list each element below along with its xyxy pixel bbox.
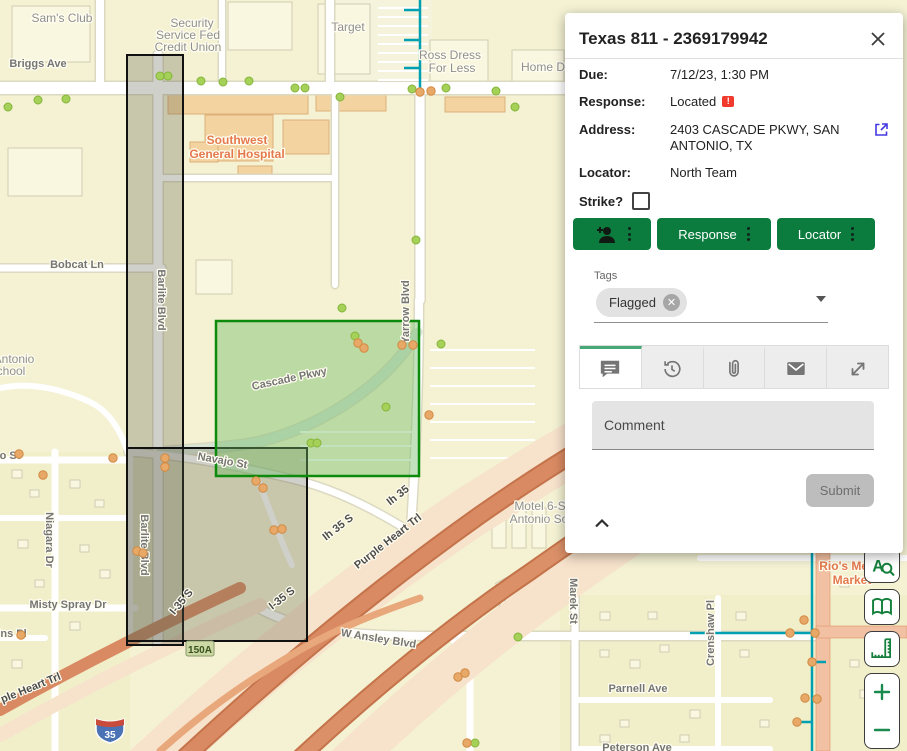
remove-tag-icon[interactable]: ✕ (663, 294, 680, 311)
app-window: 150A 35 Sam's ClubBriggs AveSecurityServ… (0, 0, 907, 751)
measure-button[interactable] (864, 631, 900, 667)
person-add-icon (594, 225, 618, 243)
orange-point[interactable] (811, 629, 819, 637)
map-label: Parnell Ave (608, 683, 667, 695)
orange-point[interactable] (409, 341, 417, 349)
due-value: 7/12/23, 1:30 PM (670, 67, 769, 83)
green-point[interactable] (219, 78, 227, 86)
locator-button[interactable]: Locator (777, 218, 875, 250)
orange-point[interactable] (398, 341, 406, 349)
green-point[interactable] (197, 77, 205, 85)
orange-point[interactable] (463, 739, 471, 747)
green-point[interactable] (412, 236, 420, 244)
orange-point[interactable] (259, 484, 267, 492)
exit-badge: 150A (186, 641, 214, 656)
strike-label: Strike? (579, 194, 623, 209)
response-value: Located! (670, 94, 734, 110)
email-icon (785, 358, 807, 380)
field-locator: Locator: North Team (579, 165, 889, 181)
orange-point[interactable] (360, 344, 368, 352)
collapse-panel-icon[interactable] (592, 516, 612, 531)
green-point[interactable] (442, 84, 450, 92)
green-point[interactable] (492, 87, 500, 95)
address-label: Address: (579, 122, 670, 137)
map-label: Marek St (567, 578, 579, 624)
comment-input[interactable]: Comment (592, 401, 874, 450)
green-point[interactable] (34, 96, 42, 104)
map-label: Home D (521, 60, 565, 74)
green-point[interactable] (408, 85, 416, 93)
green-point[interactable] (164, 72, 172, 80)
orange-point[interactable] (813, 695, 821, 703)
orange-point[interactable] (139, 549, 147, 557)
tab-email[interactable] (765, 346, 827, 388)
tags-label: Tags (594, 270, 889, 282)
orange-point[interactable] (793, 718, 801, 726)
history-icon (661, 358, 683, 380)
map-label: Crenshaw Pl (705, 600, 717, 666)
orange-point[interactable] (109, 454, 117, 462)
map-label: Ross Dress (419, 48, 481, 62)
map-label: Antonio So (510, 512, 569, 526)
map-label: Barlite Blvd (138, 514, 150, 575)
response-button[interactable]: Response (657, 218, 771, 250)
green-point[interactable] (291, 84, 299, 92)
map-label: Motel 6-S (514, 499, 565, 513)
map-label: Bobcat Ln (50, 259, 104, 271)
locator-value: North Team (670, 165, 737, 181)
green-point[interactable] (514, 633, 522, 641)
close-icon[interactable] (867, 28, 889, 50)
ruler-icon (869, 636, 895, 662)
response-label: Response: (579, 94, 670, 109)
map-label: Misty Spray Dr (29, 599, 107, 611)
map-label: Peterson Ave (602, 742, 672, 751)
map-label: Yarrow Blvd (400, 280, 412, 344)
tags-section: Tags Flagged ✕ (579, 270, 889, 323)
assign-menu-icon[interactable] (628, 227, 631, 241)
text-search-icon: A (869, 552, 895, 578)
tag-chip[interactable]: Flagged ✕ (596, 288, 687, 317)
zoom-control (864, 673, 900, 749)
ticket-panel: Texas 811 - 2369179942 Due: 7/12/23, 1:3… (565, 13, 903, 553)
tab-history[interactable] (642, 346, 704, 388)
comment-icon (599, 358, 621, 380)
orange-point[interactable] (808, 658, 816, 666)
green-point[interactable] (382, 403, 390, 411)
map-label: General Hospital (189, 147, 284, 161)
work-area-polygon-green[interactable] (216, 321, 419, 476)
map-label: Sam's Club (32, 11, 93, 25)
tags-input[interactable]: Flagged ✕ (594, 282, 828, 323)
panel-tabs (579, 345, 889, 389)
field-due: Due: 7/12/23, 1:30 PM (579, 67, 889, 83)
green-point[interactable] (156, 72, 164, 80)
orange-point[interactable] (801, 694, 809, 702)
submit-button[interactable]: Submit (806, 474, 874, 507)
address-value: 2403 CASCADE PKWY, SAN ANTONIO, TX (670, 122, 855, 155)
attachment-icon (723, 358, 745, 380)
green-point[interactable] (4, 103, 12, 111)
orange-point[interactable] (800, 616, 808, 624)
zoom-in-button[interactable] (870, 680, 894, 704)
response-alert-icon: ! (722, 96, 734, 107)
orange-point[interactable] (270, 526, 278, 534)
locator-menu-icon[interactable] (851, 227, 854, 241)
assign-user-button[interactable] (573, 218, 651, 250)
orange-point[interactable] (17, 631, 25, 639)
orange-point[interactable] (278, 525, 286, 533)
green-point[interactable] (471, 739, 479, 747)
locator-label: Locator: (579, 165, 670, 180)
green-point[interactable] (338, 304, 346, 312)
green-point[interactable] (245, 77, 253, 85)
orange-point[interactable] (252, 477, 260, 485)
due-label: Due: (579, 67, 670, 82)
map-label: Briggs Ave (9, 58, 66, 70)
map-label: Barlite Blvd (155, 269, 167, 330)
orange-point[interactable] (461, 669, 469, 677)
tab-comments[interactable] (580, 346, 642, 388)
response-menu-icon[interactable] (747, 227, 750, 241)
orange-point[interactable] (39, 471, 47, 479)
orange-point[interactable] (425, 411, 433, 419)
orange-point[interactable] (416, 88, 424, 96)
green-point[interactable] (336, 93, 344, 101)
orange-point[interactable] (427, 87, 435, 95)
tab-expand[interactable] (827, 346, 888, 388)
open-address-icon[interactable] (874, 122, 889, 137)
orange-point[interactable] (786, 629, 794, 637)
map-label: school (0, 364, 25, 378)
field-address: Address: 2403 CASCADE PKWY, SAN ANTONIO,… (579, 122, 889, 155)
green-point[interactable] (301, 84, 309, 92)
map-book-button[interactable] (864, 589, 900, 625)
map-label: Southwest (207, 133, 268, 147)
map-label: Target (331, 20, 365, 34)
orange-point[interactable] (15, 450, 23, 458)
svg-text:35: 35 (104, 730, 116, 741)
tags-dropdown-icon[interactable] (816, 296, 826, 302)
svg-text:150A: 150A (188, 645, 212, 656)
green-point[interactable] (313, 439, 321, 447)
zoom-out-button[interactable] (870, 718, 894, 742)
green-point[interactable] (511, 103, 519, 111)
orange-point[interactable] (161, 454, 169, 462)
field-response: Response: Located! (579, 94, 889, 110)
panel-title: Texas 811 - 2369179942 (579, 29, 768, 49)
field-strike: Strike? (579, 192, 889, 210)
orange-point[interactable] (161, 463, 169, 471)
expand-icon (847, 358, 869, 380)
comment-placeholder: Comment (604, 417, 665, 433)
green-point[interactable] (62, 95, 70, 103)
map-label: For Less (429, 61, 476, 75)
green-point[interactable] (437, 340, 445, 348)
strike-checkbox[interactable] (632, 192, 650, 210)
map-label: Niagara Dr (43, 512, 55, 568)
book-icon (869, 594, 895, 620)
map-label: Credit Union (155, 40, 222, 54)
tab-attachments[interactable] (704, 346, 766, 388)
